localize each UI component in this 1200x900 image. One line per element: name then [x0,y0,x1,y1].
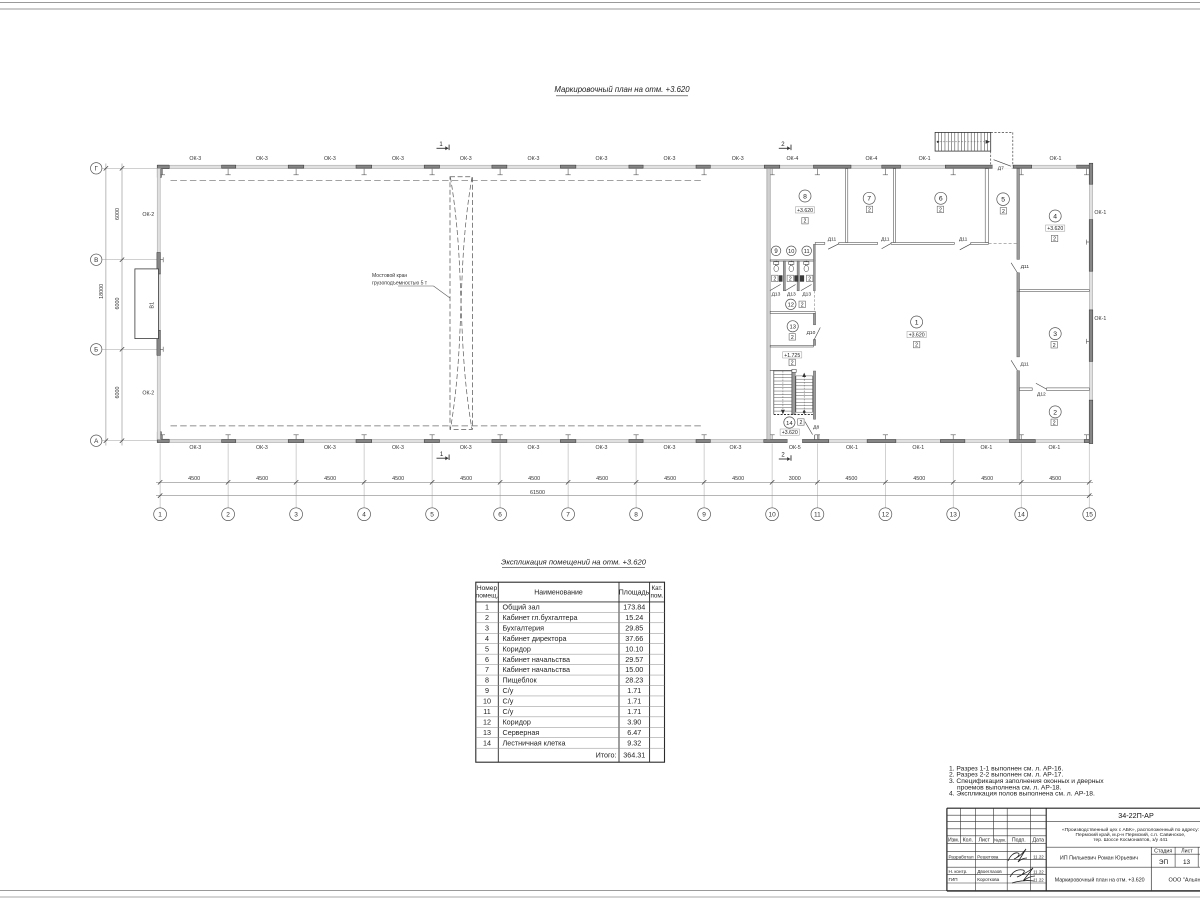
svg-text:Лист: Лист [1181,849,1193,855]
svg-text:7: 7 [566,512,570,519]
svg-text:ОК-3: ОК-3 [324,156,336,162]
svg-text:4500: 4500 [256,476,268,482]
svg-text:грузоподъемностью 5 т: грузоподъемностью 5 т [372,280,428,286]
svg-text:3: 3 [1053,331,1057,338]
svg-text:С/у: С/у [503,707,514,716]
svg-text:9.32: 9.32 [627,738,641,747]
svg-text:4500: 4500 [528,476,540,482]
svg-text:4: 4 [485,634,489,643]
svg-text:2: 2 [1053,343,1056,349]
svg-text:Короткова: Короткова [977,877,999,882]
svg-text:+3.620: +3.620 [1047,226,1063,232]
svg-text:2: 2 [1053,409,1057,416]
svg-text:+1.725: +1.725 [784,353,800,359]
svg-text:ЭП: ЭП [1159,859,1169,866]
svg-text:В1: В1 [149,302,155,309]
svg-text:2: 2 [799,420,802,426]
svg-text:Изм.: Изм. [948,838,959,844]
svg-text:5: 5 [430,512,434,519]
svg-text:Мостовой кран: Мостовой кран [372,272,407,279]
svg-text:3: 3 [485,623,489,632]
svg-text:5: 5 [1001,197,1005,204]
svg-text:11: 11 [483,707,490,716]
svg-text:№док.: №док. [994,838,1006,843]
svg-text:13: 13 [789,325,795,331]
svg-text:13: 13 [1183,859,1191,866]
svg-text:8: 8 [803,193,807,200]
svg-text:18000: 18000 [99,284,105,299]
svg-text:Кабинет директора: Кабинет директора [503,634,567,643]
svg-text:+3.620: +3.620 [909,333,925,339]
svg-text:Стадия: Стадия [1154,849,1172,855]
svg-text:тер. Шоссе Космонавтов, з/у 44: тер. Шоссе Космонавтов, з/у 441 [1093,837,1168,843]
svg-text:5: 5 [485,644,489,653]
svg-text:Маркировочный план на отм. +3.: Маркировочный план на отм. +3.620 [1055,877,1145,884]
svg-text:С/у: С/у [503,697,514,706]
svg-text:Решетова: Решетова [977,854,998,859]
svg-text:10: 10 [483,697,491,706]
svg-text:12: 12 [788,303,794,309]
svg-text:ОК-4: ОК-4 [786,156,798,162]
svg-text:2: 2 [791,335,794,341]
svg-text:4: 4 [1053,213,1057,220]
svg-text:1.71: 1.71 [627,697,641,706]
svg-text:Площадь: Площадь [619,590,650,597]
svg-text:Общий зал: Общий зал [503,603,540,612]
svg-text:4. Экспликация полов выполнена: 4. Экспликация полов выполнена см. л. АР… [949,791,1095,798]
svg-text:6: 6 [485,655,489,664]
svg-text:2: 2 [915,343,918,349]
svg-text:В: В [94,257,98,264]
svg-text:6: 6 [939,196,943,203]
svg-text:+3.620: +3.620 [797,208,813,214]
svg-text:ООО "Альянс-Проект": ООО "Альянс-Проект" [1169,878,1200,884]
svg-text:4500: 4500 [913,476,925,482]
svg-text:10: 10 [788,249,794,255]
svg-text:Н. контр.: Н. контр. [949,869,968,874]
svg-text:11.22: 11.22 [1033,877,1044,882]
svg-text:4500: 4500 [845,476,857,482]
svg-text:2: 2 [868,207,871,213]
svg-text:Подп.: Подп. [1012,838,1026,844]
svg-text:3000: 3000 [789,476,801,482]
svg-text:Номер: Номер [477,585,498,592]
svg-text:2: 2 [939,207,942,213]
svg-text:2: 2 [789,276,792,282]
svg-text:37.66: 37.66 [625,634,643,643]
svg-text:15.24: 15.24 [625,613,643,622]
svg-text:7: 7 [867,196,871,203]
svg-text:1: 1 [915,319,919,326]
svg-text:4500: 4500 [392,476,404,482]
svg-text:2: 2 [1002,209,1005,215]
svg-text:ОК-3: ОК-3 [528,156,540,162]
svg-text:Экспликация помещений на отм.: Экспликация помещений на отм. +3.620 [501,558,647,567]
svg-text:ОК-3: ОК-3 [460,445,472,451]
svg-text:С/у: С/у [503,686,514,695]
svg-text:12: 12 [882,512,890,519]
svg-text:ОК-3: ОК-3 [189,445,201,451]
svg-text:11.22: 11.22 [1033,869,1044,874]
svg-text:Д11: Д11 [828,236,837,242]
svg-text:34-22П-АР: 34-22П-АР [1118,811,1154,820]
svg-text:ОК-1: ОК-1 [1048,445,1060,451]
svg-text:28.23: 28.23 [625,676,643,685]
svg-text:2: 2 [808,276,811,282]
svg-text:364.31: 364.31 [623,751,645,760]
svg-text:Д13: Д13 [802,292,811,298]
svg-text:Д8: Д8 [813,425,819,431]
svg-text:3: 3 [294,512,298,519]
svg-text:Д11: Д11 [1021,361,1030,367]
svg-text:Д13: Д13 [787,292,796,298]
svg-text:14: 14 [786,421,793,427]
svg-text:2: 2 [485,613,489,622]
svg-text:ОК-1: ОК-1 [1050,156,1062,162]
svg-text:7: 7 [485,665,489,674]
svg-text:ОК-1: ОК-1 [846,445,858,451]
svg-text:Коридор: Коридор [503,717,531,726]
svg-text:9: 9 [702,512,706,519]
svg-text:15.00: 15.00 [625,665,643,674]
svg-text:Б: Б [94,347,98,354]
svg-text:3.90: 3.90 [627,717,641,726]
svg-text:10: 10 [768,512,776,519]
svg-text:Г: Г [94,166,98,173]
svg-text:Д13: Д13 [772,292,781,298]
svg-text:Кабинет начальства: Кабинет начальства [503,655,570,664]
svg-text:ОК-3: ОК-3 [664,445,676,451]
svg-text:ОК-3: ОК-3 [732,156,744,162]
svg-text:+3.620: +3.620 [782,430,798,436]
svg-text:ОК-3: ОК-3 [460,156,472,162]
svg-text:Кол.: Кол. [963,838,973,844]
svg-text:9: 9 [485,686,489,695]
svg-text:ОК-1: ОК-1 [1094,316,1106,322]
svg-text:ОК-3: ОК-3 [392,156,404,162]
svg-text:2: 2 [791,360,794,366]
svg-text:ОК-1: ОК-1 [912,445,924,451]
svg-text:ОК-1: ОК-1 [980,445,992,451]
svg-text:ОК-3: ОК-3 [324,445,336,451]
svg-text:6000: 6000 [115,298,121,310]
svg-text:ОК-3: ОК-3 [528,445,540,451]
svg-text:Двоеглазов: Двоеглазов [977,869,1002,874]
svg-text:13: 13 [483,728,491,737]
svg-text:ОК-3: ОК-3 [256,445,268,451]
svg-text:ОК-4: ОК-4 [865,156,877,162]
svg-text:11: 11 [804,249,810,255]
svg-text:6.47: 6.47 [627,728,641,737]
svg-text:6000: 6000 [115,387,121,399]
svg-text:15: 15 [1086,512,1094,519]
svg-text:Кабинет начальства: Кабинет начальства [503,665,570,674]
svg-text:4: 4 [362,512,366,519]
svg-text:6000: 6000 [115,208,121,220]
svg-text:ОК-2: ОК-2 [142,212,154,218]
svg-text:Дата: Дата [1033,838,1045,844]
svg-text:4500: 4500 [664,476,676,482]
svg-text:Д11: Д11 [959,236,968,242]
svg-text:14: 14 [1018,512,1026,519]
svg-text:12: 12 [483,717,491,726]
svg-text:ОК-3: ОК-3 [596,156,608,162]
svg-text:Кабинет гл.бухгалтера: Кабинет гл.бухгалтера [503,613,578,622]
svg-text:29.85: 29.85 [625,623,643,632]
svg-text:Кат.: Кат. [652,585,663,592]
svg-text:4500: 4500 [460,476,472,482]
svg-text:1.71: 1.71 [627,686,641,695]
svg-text:Серверная: Серверная [503,728,540,737]
svg-text:13: 13 [950,512,958,519]
svg-text:2: 2 [1053,237,1056,243]
svg-text:2: 2 [1053,420,1056,426]
svg-text:6: 6 [498,512,502,519]
svg-text:Д11: Д11 [881,236,890,242]
svg-text:8: 8 [485,676,489,685]
svg-text:ОК-3: ОК-3 [392,445,404,451]
svg-text:2: 2 [801,302,804,308]
svg-text:ОК-3: ОК-3 [730,445,742,451]
svg-text:пом.: пом. [651,593,664,600]
svg-text:1.71: 1.71 [627,707,641,716]
svg-text:Бухгалтерия: Бухгалтерия [503,623,545,632]
svg-text:4500: 4500 [981,476,993,482]
svg-text:ОК-5: ОК-5 [789,445,801,451]
svg-text:29.57: 29.57 [625,655,643,664]
svg-text:1: 1 [485,603,489,612]
svg-text:1: 1 [158,512,162,519]
svg-text:4500: 4500 [324,476,336,482]
svg-text:8: 8 [634,512,638,519]
svg-text:14: 14 [483,738,491,747]
svg-text:Наименование: Наименование [534,590,583,597]
svg-text:61500: 61500 [530,490,545,496]
svg-text:173.84: 173.84 [623,603,645,612]
svg-text:10.10: 10.10 [625,644,643,653]
svg-text:ГИП: ГИП [949,877,958,882]
svg-text:ОК-2: ОК-2 [142,390,154,396]
svg-text:ОК-3: ОК-3 [596,445,608,451]
svg-text:Д7: Д7 [998,166,1004,172]
svg-text:Д12: Д12 [1037,392,1046,398]
svg-text:Д11: Д11 [1021,264,1030,270]
svg-text:4500: 4500 [732,476,744,482]
svg-text:Коридор: Коридор [503,644,531,653]
svg-text:помещ.: помещ. [476,593,499,600]
svg-text:Маркировочный план на отм. +3: Маркировочный план на отм. +3.620 [554,85,690,94]
svg-text:11.22: 11.22 [1033,855,1044,860]
svg-text:4500: 4500 [188,476,200,482]
svg-text:Пищеблок: Пищеблок [503,676,538,685]
svg-text:Лестничная клетка: Лестничная клетка [503,738,566,747]
svg-text:Д10: Д10 [807,330,816,336]
svg-text:2: 2 [804,219,807,225]
svg-text:4500: 4500 [1049,476,1061,482]
svg-text:ИП Пилькевич Роман Юрьевич: ИП Пилькевич Роман Юрьевич [1060,855,1138,861]
svg-text:ОК-1: ОК-1 [1094,210,1106,216]
svg-text:2: 2 [226,512,230,519]
svg-text:ОК-3: ОК-3 [256,156,268,162]
svg-text:2: 2 [773,276,776,282]
svg-text:Разработал: Разработал [949,854,974,859]
svg-text:Итого:: Итого: [596,751,617,760]
svg-text:ОК-3: ОК-3 [664,156,676,162]
svg-text:4500: 4500 [596,476,608,482]
svg-text:ОК-3: ОК-3 [189,156,201,162]
svg-text:ОК-1: ОК-1 [919,156,931,162]
svg-text:Лист: Лист [979,838,991,844]
svg-text:11: 11 [814,512,821,519]
